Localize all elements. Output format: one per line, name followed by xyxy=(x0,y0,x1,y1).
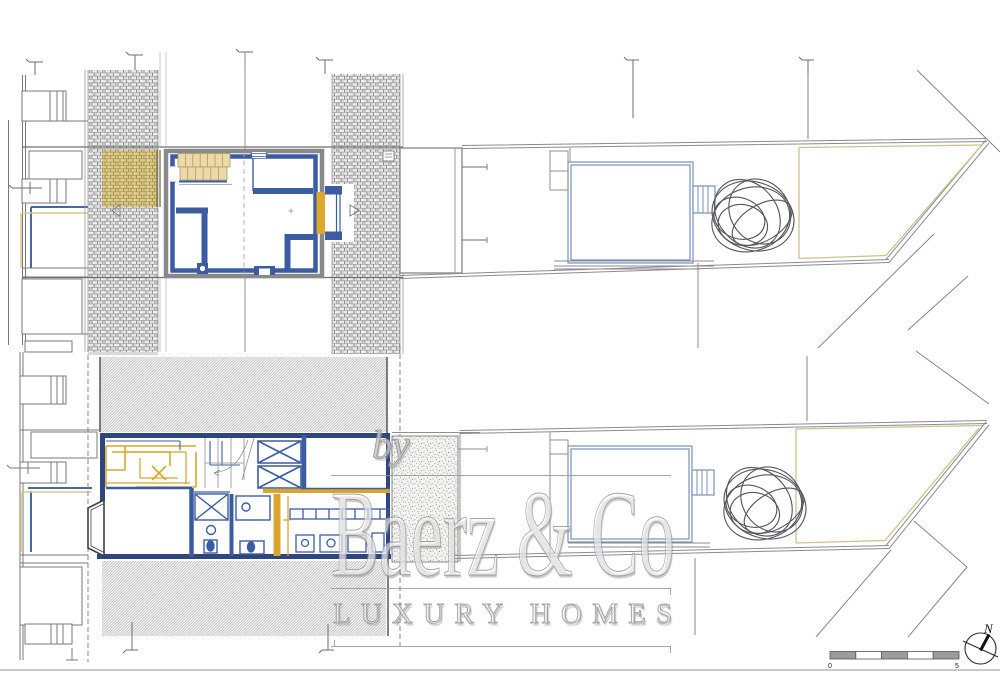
svg-text:0: 0 xyxy=(828,663,832,670)
svg-text:N: N xyxy=(983,621,994,636)
svg-text:5: 5 xyxy=(955,663,959,670)
